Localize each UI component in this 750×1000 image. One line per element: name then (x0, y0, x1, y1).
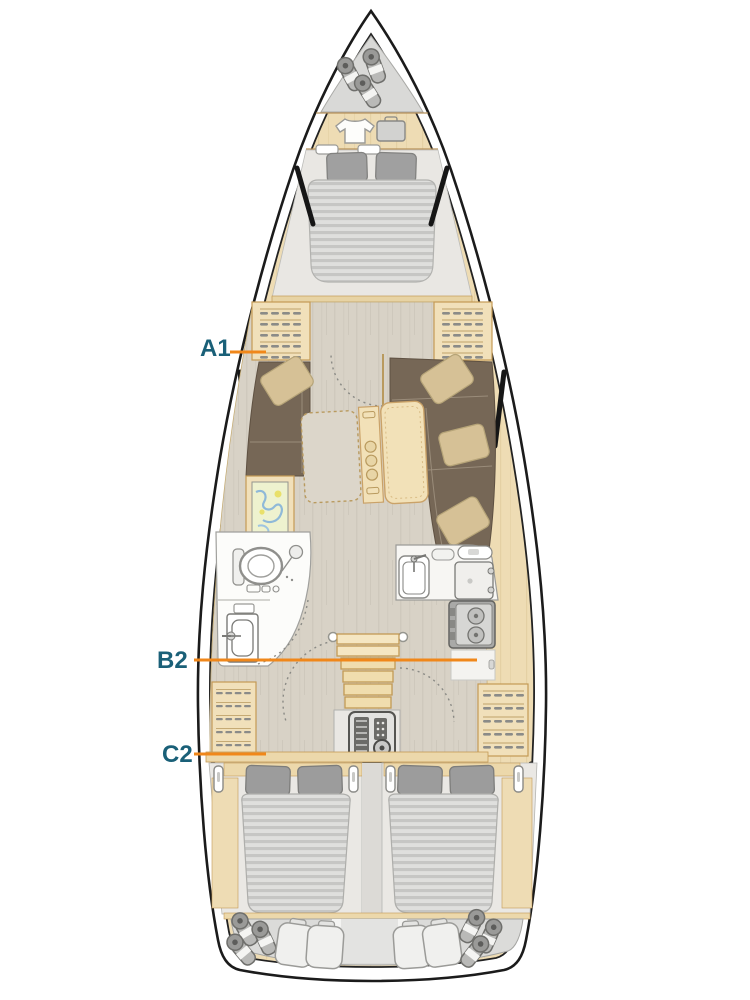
mattress (308, 180, 436, 282)
table-folding-leaf (301, 410, 362, 503)
wardrobe-starboard-aft (478, 684, 528, 756)
stern-walkway (341, 919, 398, 963)
side-locker (502, 778, 532, 908)
aft-cabin-port (209, 763, 362, 914)
yacht-floor-plan: A1 B2 C2 (0, 0, 750, 1000)
side-locker (212, 778, 238, 908)
door-latch-icon (349, 766, 358, 792)
galley-tray (432, 549, 454, 560)
door-latch-icon (386, 766, 395, 792)
table-top (380, 401, 428, 504)
pillow (298, 765, 343, 796)
bulkhead (272, 296, 472, 302)
label-b2: B2 (157, 647, 188, 674)
mattress (389, 794, 498, 913)
door-latch-icon (214, 766, 223, 792)
grab-post (329, 633, 338, 642)
stove-icon (449, 601, 495, 648)
hatch-latch-icon (316, 145, 338, 154)
grab-post (399, 633, 408, 642)
galley-cover (458, 546, 492, 559)
suitcase-icon (377, 117, 405, 141)
label-a1: A1 (200, 335, 231, 362)
head-shelf (234, 604, 254, 613)
pillow (245, 765, 290, 796)
galley-niche (451, 650, 495, 680)
pillow (327, 152, 368, 182)
aft-cabin-starboard (382, 763, 537, 914)
mattress (242, 794, 350, 913)
wardrobe-starboard-forward (434, 302, 492, 360)
sail-bag-icon (306, 920, 345, 969)
pillow (397, 765, 442, 796)
door-latch-icon (514, 766, 523, 792)
pillow (450, 765, 495, 796)
label-c2: C2 (162, 741, 193, 768)
bottle-holder-icon (366, 469, 378, 481)
bottle-holder-icon (366, 455, 378, 467)
bottle-holder-icon (365, 441, 377, 453)
salon-table (300, 401, 428, 508)
head-sink-icon (222, 614, 258, 662)
pillow (375, 152, 416, 182)
aft-corridor (362, 763, 382, 914)
galley-sink-icon (399, 555, 429, 598)
yacht-floor-plan-page: A1 B2 C2 (0, 0, 750, 1000)
forward-cabin (272, 145, 472, 302)
wardrobe-port-aft (212, 682, 256, 756)
fridge-icon (455, 562, 494, 599)
